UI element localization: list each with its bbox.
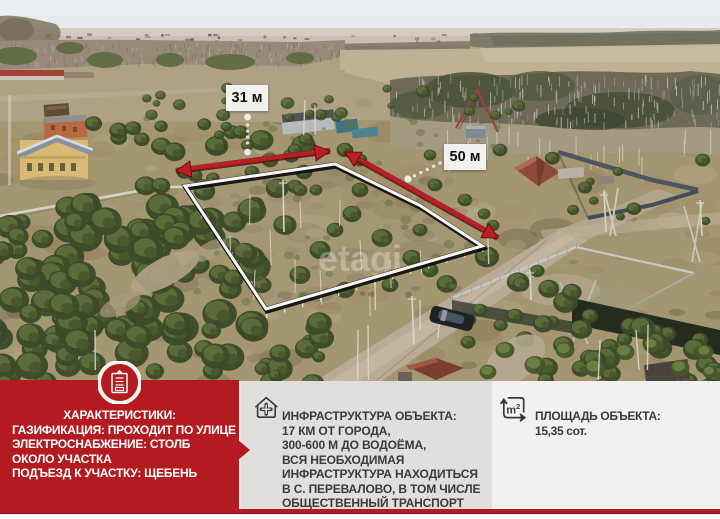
- svg-text:m2: m2: [506, 402, 520, 417]
